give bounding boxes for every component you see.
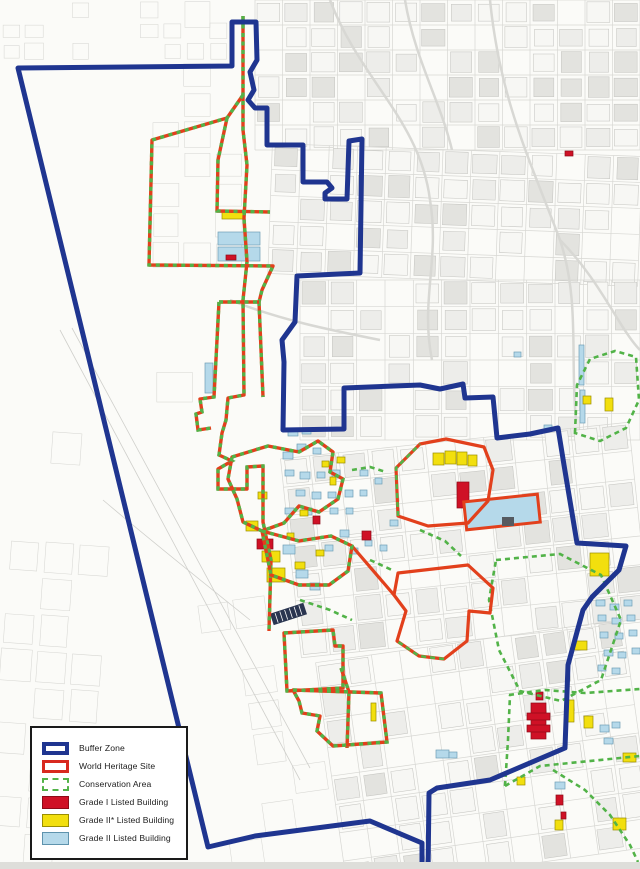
grade-2-building [360, 470, 368, 476]
city-block [450, 788, 476, 814]
legend-swatch-world-heritage-site [42, 760, 69, 773]
grade-2-building [283, 452, 293, 459]
city-block [472, 180, 495, 201]
city-block [431, 472, 457, 497]
city-block [302, 390, 325, 411]
city-block [582, 513, 609, 539]
city-block [440, 256, 465, 277]
city-block [257, 3, 280, 21]
city-block [497, 725, 524, 749]
city-block [530, 364, 551, 384]
city-block [506, 3, 526, 22]
city-block [617, 28, 637, 46]
city-block [259, 77, 279, 97]
city-block [386, 202, 409, 224]
dark-building [502, 517, 514, 526]
city-block [615, 282, 637, 304]
city-block [442, 204, 466, 226]
city-block [479, 104, 499, 121]
city-block [360, 743, 383, 768]
city-block [614, 129, 637, 146]
city-block [417, 336, 438, 357]
grade-2-building [580, 390, 585, 423]
city-block [533, 4, 554, 21]
grade-2-building [313, 448, 321, 454]
city-block [615, 363, 637, 384]
city-block [467, 701, 492, 724]
legend-item: World Heritage Site [42, 759, 178, 773]
city-block [501, 578, 527, 605]
grade-2-building [604, 738, 613, 744]
grade-1-building [556, 795, 563, 805]
city-block [272, 250, 294, 272]
grade-2-building [325, 545, 333, 551]
city-block [331, 282, 353, 304]
grade-2-building [285, 470, 294, 476]
city-block [415, 391, 439, 410]
city-block [445, 152, 468, 174]
grade-1-building [226, 255, 236, 260]
grade-2-building [218, 247, 260, 261]
grade-2-building [330, 508, 338, 514]
city-block [328, 251, 351, 274]
city-block [502, 311, 523, 330]
city-block [416, 416, 439, 437]
city-block [302, 282, 325, 304]
city-block [334, 777, 360, 801]
city-block [314, 127, 334, 148]
city-block [368, 27, 389, 48]
city-block [534, 29, 553, 46]
city-block [586, 362, 609, 384]
bottom-strip [0, 862, 640, 869]
legend-label: Grade I Listed Building [79, 797, 168, 807]
city-block [471, 205, 495, 226]
grade-2-building [312, 492, 321, 499]
grade-2-star-building [316, 550, 324, 556]
grade-2-star-building [590, 553, 609, 576]
grade-2-star-building [555, 820, 563, 830]
city-block [470, 257, 493, 278]
city-block [331, 363, 354, 383]
city-block [422, 29, 445, 46]
city-block [356, 594, 383, 620]
city-block [589, 52, 608, 72]
city-block [609, 482, 634, 507]
city-block [422, 793, 448, 817]
grade-2-star-building [330, 477, 336, 485]
city-block [623, 792, 640, 819]
city-block [479, 78, 498, 96]
city-block [587, 128, 610, 146]
city-block [410, 533, 433, 557]
grade-2-building [300, 472, 310, 479]
city-block [614, 104, 637, 121]
city-block [287, 28, 306, 47]
city-block [273, 225, 294, 245]
map-screenshot: Buffer Zone World Heritage Site Conserva… [0, 0, 640, 869]
city-block [560, 127, 582, 147]
city-block [372, 449, 396, 475]
city-block [275, 174, 296, 192]
city-block [445, 310, 466, 329]
city-block [587, 104, 610, 121]
city-block [500, 180, 525, 202]
city-block [499, 232, 522, 253]
grade-2-building [436, 750, 449, 758]
city-block [451, 4, 471, 21]
city-block [614, 3, 637, 21]
grade-2-star-building [584, 716, 593, 728]
city-block [285, 3, 307, 21]
city-block [614, 184, 639, 205]
city-block [418, 619, 443, 641]
city-block [354, 567, 378, 592]
city-block [443, 231, 465, 251]
legend-label: World Heritage Site [79, 761, 155, 771]
grade-2-building [340, 530, 349, 537]
city-block [533, 54, 554, 71]
city-block [444, 180, 468, 199]
grade-2-building [375, 478, 382, 484]
grade-2-star-building [322, 461, 329, 467]
grade-2-building [390, 520, 398, 526]
city-block [529, 284, 553, 303]
legend-item: Grade II Listed Building [42, 831, 178, 845]
city-block [444, 282, 467, 304]
city-block [348, 657, 371, 684]
city-block [369, 128, 389, 147]
grade-2-building [598, 615, 606, 621]
city-block [331, 310, 354, 329]
city-block [575, 656, 599, 680]
grade-2-building [283, 545, 295, 554]
city-block [530, 310, 552, 330]
city-block [483, 811, 507, 838]
legend-item: Conservation Area [42, 777, 178, 791]
city-block [359, 388, 382, 411]
legend-item: Buffer Zone [42, 741, 178, 755]
city-block [534, 104, 553, 121]
city-block [535, 606, 558, 629]
city-block [557, 336, 580, 357]
grade-2-star-building [433, 453, 444, 465]
grade-2-building [555, 782, 565, 789]
grade-2-building [296, 490, 305, 496]
grade-2-building [380, 545, 387, 551]
city-block [532, 128, 555, 146]
city-block [444, 417, 467, 436]
grade-2-building [627, 615, 635, 621]
city-block [416, 284, 439, 303]
city-block [443, 362, 467, 384]
legend-item: Grade II* Listed Building [42, 813, 178, 827]
city-block [312, 29, 335, 47]
grade-2-star-building [605, 398, 613, 411]
grade-2-building [612, 722, 620, 728]
city-block [361, 311, 381, 330]
city-block [588, 77, 609, 98]
city-block [469, 554, 496, 580]
city-block [286, 53, 307, 71]
grade-2-building [205, 363, 213, 393]
city-block [591, 768, 615, 794]
grade-2-building [296, 570, 308, 578]
city-block [528, 548, 553, 573]
legend-label: Conservation Area [79, 779, 151, 789]
grade-2-building [600, 725, 609, 732]
city-block [361, 417, 382, 437]
grade-2-building [596, 600, 605, 606]
city-block [614, 78, 637, 96]
city-block [439, 702, 464, 728]
city-block [313, 102, 334, 122]
city-block [389, 151, 411, 171]
city-block [300, 226, 323, 246]
city-block [579, 486, 605, 510]
legend-label: Grade II Listed Building [79, 833, 171, 843]
city-block [423, 127, 445, 147]
city-block [312, 53, 335, 72]
city-block [422, 4, 445, 22]
city-block [561, 79, 581, 96]
city-block [501, 155, 525, 174]
grade-2-building [360, 490, 367, 496]
grade-2-star-building [517, 777, 525, 785]
legend: Buffer Zone World Heritage Site Conserva… [30, 726, 188, 860]
grade-2-star-building [371, 703, 376, 721]
city-block [364, 773, 388, 796]
city-block [617, 157, 639, 180]
city-block [587, 310, 608, 330]
city-block [470, 727, 495, 754]
city-block [384, 254, 408, 275]
grade-2-star-building [468, 455, 477, 466]
city-block [489, 666, 516, 693]
city-block [389, 364, 410, 383]
city-block [528, 389, 552, 410]
city-block [519, 662, 543, 688]
grade-2-building [612, 668, 620, 674]
city-block [318, 663, 344, 687]
city-block [396, 54, 416, 71]
city-block [501, 284, 524, 303]
city-block [301, 252, 322, 272]
grade-1-building [561, 812, 566, 819]
city-block [391, 768, 416, 792]
city-block [302, 364, 326, 383]
grade-2-star-building [295, 562, 305, 569]
city-block [321, 540, 347, 566]
grade-2-building [514, 352, 521, 357]
grade-2-building [600, 632, 608, 638]
grade-2-building [624, 600, 632, 606]
city-block [449, 77, 472, 97]
legend-swatch-conservation-area [42, 778, 69, 791]
city-block [395, 796, 419, 821]
city-block [367, 2, 390, 22]
grade-2-star-building [583, 396, 591, 404]
city-block [561, 52, 581, 73]
grade-2-building [632, 648, 640, 654]
grade-1-building [527, 725, 550, 732]
city-block [340, 2, 362, 23]
city-block [615, 52, 637, 73]
legend-label: Buffer Zone [79, 743, 125, 753]
city-block [416, 588, 440, 614]
city-block [534, 78, 554, 97]
city-block [312, 77, 335, 97]
grade-1-building [531, 703, 546, 739]
grade-2-building [629, 630, 637, 636]
city-block [472, 154, 497, 174]
legend-item: Grade I Listed Building [42, 795, 178, 809]
grade-2-building [345, 490, 353, 497]
legend-swatch-grade-1 [42, 796, 69, 809]
city-block [300, 199, 324, 220]
city-block [478, 127, 500, 148]
grade-2-building [328, 492, 336, 498]
city-block [587, 156, 610, 178]
city-block [472, 309, 495, 331]
city-block [451, 52, 472, 72]
legend-swatch-grade-2-star [42, 814, 69, 827]
city-block [479, 52, 499, 73]
city-block [472, 581, 499, 608]
city-block [438, 530, 463, 554]
city-block [415, 204, 438, 223]
grade-1-building [313, 516, 320, 524]
grade-1-building [527, 713, 550, 720]
city-block [358, 622, 385, 649]
grade-2-building [618, 652, 626, 658]
city-block [472, 283, 496, 304]
legend-swatch-buffer-zone [42, 742, 69, 755]
city-block [339, 102, 362, 122]
city-block [515, 635, 539, 659]
city-block [619, 766, 640, 790]
city-block [587, 2, 610, 23]
city-block [388, 175, 410, 198]
city-block [478, 4, 499, 21]
grade-2-star-building [445, 451, 456, 464]
city-block [505, 27, 527, 48]
city-block [450, 102, 472, 122]
city-block [561, 103, 582, 122]
legend-label: Grade II* Listed Building [79, 815, 174, 825]
city-block [585, 210, 609, 230]
grade-2-building [346, 508, 353, 514]
city-block [332, 336, 353, 356]
legend-swatch-grade-2 [42, 832, 69, 845]
city-block [558, 208, 580, 229]
city-block [501, 207, 523, 227]
grade-2-building [218, 232, 260, 245]
grade-2-building [365, 540, 372, 546]
grade-2-building [317, 472, 325, 478]
city-block [542, 833, 567, 858]
city-block [446, 336, 466, 356]
grade-2-building [449, 752, 457, 758]
grade-1-building [565, 151, 573, 156]
city-block [387, 230, 408, 249]
grade-2-star-building [337, 457, 345, 463]
city-block [558, 183, 581, 203]
grade-2-star-building [457, 452, 467, 465]
grade-2-star-building [300, 510, 308, 516]
city-block [543, 632, 566, 656]
city-block [286, 78, 306, 96]
city-block [367, 52, 390, 72]
city-block [500, 389, 524, 411]
city-block [560, 29, 583, 46]
grade-1-building [362, 531, 371, 540]
city-block [589, 29, 609, 46]
city-block [559, 389, 579, 411]
city-block [574, 428, 599, 454]
city-block [389, 335, 409, 357]
city-block [274, 148, 297, 167]
city-block [529, 336, 551, 357]
city-block [586, 183, 609, 204]
city-block [330, 202, 352, 221]
city-block [304, 337, 325, 357]
city-block [444, 586, 468, 611]
city-block [314, 2, 333, 22]
